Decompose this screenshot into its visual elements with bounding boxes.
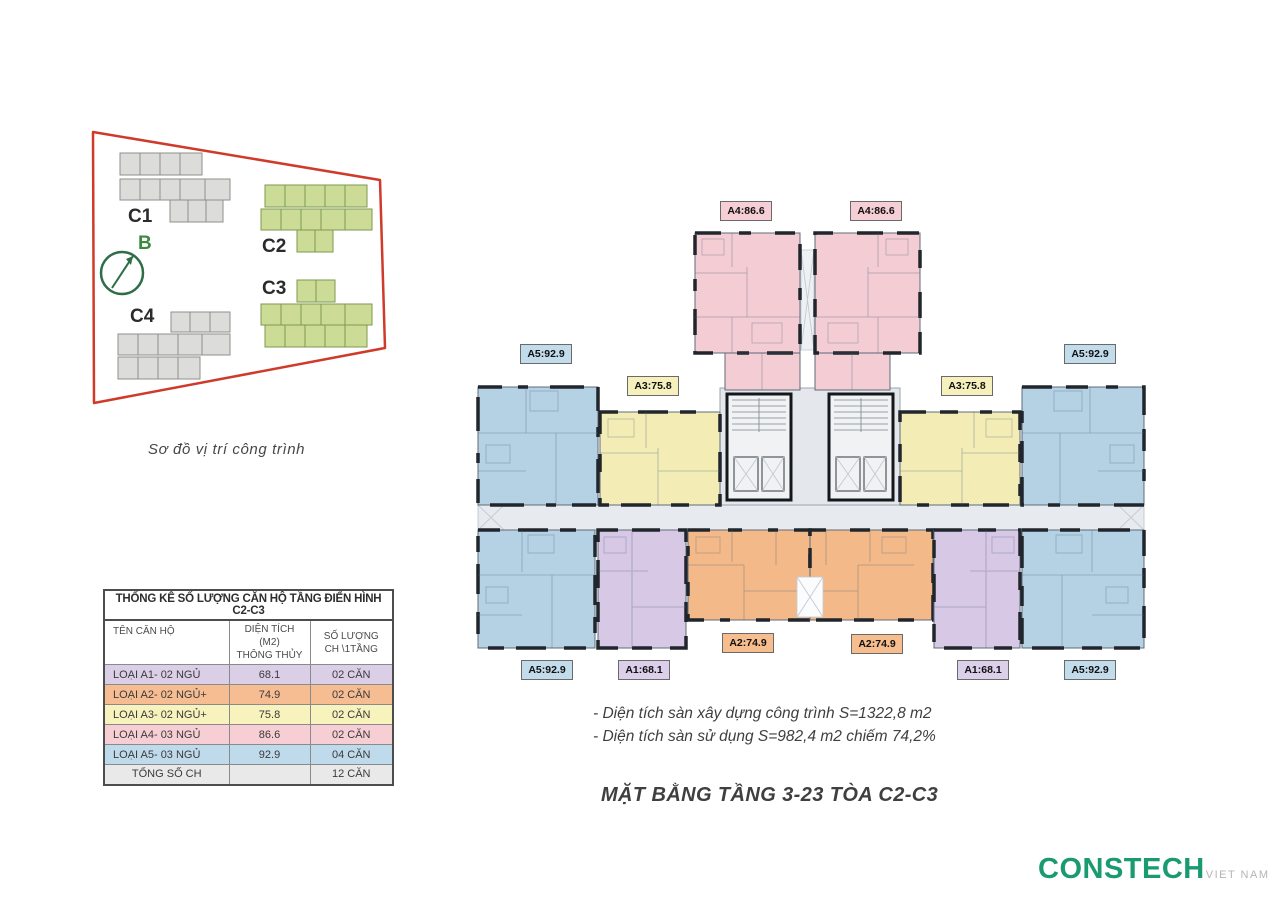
table-title: THỐNG KÊ SỐ LƯỢNG CĂN HỘ TẦNG ĐIỂN HÌNH … — [104, 590, 393, 620]
col-header-name: TÊN CĂN HỘ — [104, 620, 229, 665]
logo-suffix-text: VIET NAM — [1206, 869, 1270, 881]
north-compass-icon — [101, 252, 143, 294]
note-line-1: - Diện tích sàn xây dựng công trình S=13… — [593, 702, 936, 725]
stairwell-right — [829, 394, 893, 500]
unit-a3-left — [600, 412, 720, 505]
unit-label-a3-left: A3:75.8 — [627, 376, 679, 396]
core-area — [720, 388, 900, 505]
col-header-qty: SỐ LƯỢNG CH \1TẦNG — [310, 620, 393, 665]
table-row-a5: LOẠI A5- 03 NGỦ 92.9 04 CĂN — [104, 745, 393, 765]
unit-label-a5-bottom-right: A5:92.9 — [1064, 660, 1116, 680]
apartment-stats-table: THỐNG KÊ SỐ LƯỢNG CĂN HỘ TẦNG ĐIỂN HÌNH … — [103, 589, 394, 786]
unit-a2-left — [688, 530, 810, 620]
table-title-row: THỐNG KÊ SỐ LƯỢNG CĂN HỘ TẦNG ĐIỂN HÌNH … — [104, 590, 393, 620]
area-notes: - Diện tích sàn xây dựng công trình S=13… — [593, 702, 936, 748]
unit-label-a4-right: A4:86.6 — [850, 201, 902, 221]
table-row-a4: LOẠI A4- 03 NGỦ 86.6 02 CĂN — [104, 725, 393, 745]
col-header-area: DIỆN TÍCH (M2) THÔNG THỦY — [229, 620, 310, 665]
page-canvas: { "site_plan": { "caption": "Sơ đồ vị tr… — [0, 0, 1280, 906]
unit-label-a2-left: A2:74.9 — [722, 633, 774, 653]
plan-title: MẶT BẰNG TẦNG 3-23 TÒA C2-C3 — [601, 784, 938, 807]
note-line-2: - Diện tích sàn sử dụng S=982,4 m2 chiếm… — [593, 725, 936, 748]
unit-a5-lower-left — [478, 530, 595, 648]
building-label-c2: C2 — [262, 236, 286, 257]
unit-a1-left — [598, 530, 686, 648]
table-row-a1: LOẠI A1- 02 NGỦ 68.1 02 CĂN — [104, 665, 393, 685]
unit-a5-lower-right — [1022, 530, 1144, 648]
table-header-row: TÊN CĂN HỘ DIỆN TÍCH (M2) THÔNG THỦY SỐ … — [104, 620, 393, 665]
central-void — [797, 577, 823, 617]
tower-gap — [801, 250, 814, 350]
unit-label-a1-left: A1:68.1 — [618, 660, 670, 680]
unit-a5-upper-right — [1022, 387, 1144, 505]
stairwell-left — [727, 394, 791, 500]
unit-a3-right — [900, 412, 1020, 505]
unit-a5-upper-left — [478, 387, 598, 505]
unit-label-a3-right: A3:75.8 — [941, 376, 993, 396]
unit-label-a4-left: A4:86.6 — [720, 201, 772, 221]
building-label-c1: C1 — [128, 206, 153, 227]
building-label-c4: C4 — [130, 306, 155, 327]
building-label-c3: C3 — [262, 278, 286, 299]
unit-a4-left — [695, 233, 800, 390]
table-row-a3: LOẠI A3- 02 NGỦ+ 75.8 02 CĂN — [104, 705, 393, 725]
unit-label-a5-top-right: A5:92.9 — [1064, 344, 1116, 364]
table-row-total: TỔNG SỐ CH 12 CĂN — [104, 765, 393, 785]
site-plan-caption: Sơ đồ vị trí công trình — [148, 441, 305, 458]
site-plan-diagram: C1 C2 C3 C4 B — [80, 112, 420, 462]
table-row-a2: LOẠI A2- 02 NGỦ+ 74.9 02 CĂN — [104, 685, 393, 705]
logo-brand-text: CONSTECH — [1038, 853, 1205, 885]
unit-label-a1-right: A1:68.1 — [957, 660, 1009, 680]
floor-plan-drawing — [470, 195, 1170, 710]
corridor — [478, 505, 1144, 530]
constech-logo: CONSTECHVIET NAM — [1038, 853, 1270, 886]
unit-label-a2-right: A2:74.9 — [851, 634, 903, 654]
unit-a4-right — [815, 233, 920, 390]
unit-label-a5-bottom-left: A5:92.9 — [521, 660, 573, 680]
unit-a2-right — [810, 530, 933, 620]
unit-label-a5-top-left: A5:92.9 — [520, 344, 572, 364]
north-label: B — [138, 233, 152, 254]
unit-a1-right — [934, 530, 1020, 648]
